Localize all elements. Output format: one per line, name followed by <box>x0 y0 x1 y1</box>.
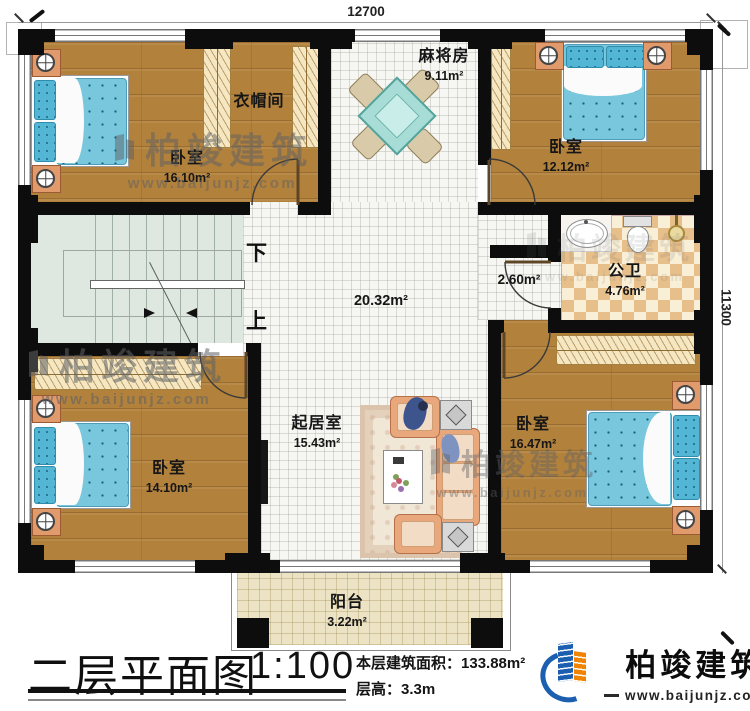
dimension-value-top: 12700 <box>316 4 416 19</box>
room-name: 卧室 <box>549 138 583 159</box>
room-label-vestibule: 2.60m² <box>498 271 541 289</box>
title-underline-thin <box>28 699 346 701</box>
logo-url: www.baijunjz.com <box>625 688 750 703</box>
dimension-value-right: 11300 <box>719 278 734 338</box>
room-name: 卧室 <box>152 459 186 480</box>
room-area: 16.10m² <box>164 170 211 186</box>
room-name: 卧室 <box>170 149 204 170</box>
floor-height-label: 层高： <box>356 681 401 698</box>
room-label-bedroom-tr: 卧室 12.12m² <box>543 138 590 175</box>
stair-up-label: 上 <box>246 305 267 335</box>
room-area: 14.10m² <box>146 480 193 496</box>
room-area: 15.43m² <box>294 435 341 451</box>
room-label-bedroom-tl: 卧室 16.10m² <box>164 149 211 186</box>
logo-text: 柏竣建筑 www.baijunjz.com <box>604 640 750 703</box>
room-area: 16.47m² <box>510 436 557 452</box>
room-label-mahjong: 麻将房 9.11m² <box>418 47 469 84</box>
room-name: 起居室 <box>291 414 342 435</box>
room-name: 公卫 <box>608 262 642 283</box>
floor-area-label: 本层建筑面积： <box>356 655 461 672</box>
floor-height-info: 层高：3.3m <box>356 678 435 699</box>
room-label-bedroom-bl: 卧室 14.10m² <box>146 459 193 496</box>
logo-brand-name: 柏竣建筑 <box>625 640 750 685</box>
floor-area-info: 本层建筑面积：133.88m² <box>356 652 525 673</box>
room-label-bathroom: 公卫 4.76m² <box>605 262 645 299</box>
room-name: 阳台 <box>330 593 364 614</box>
title-underline <box>28 689 346 693</box>
logo-url-bar <box>604 694 619 697</box>
room-label-cloakroom: 衣帽间 <box>233 92 284 113</box>
room-label-hall: 20.32m² <box>354 292 408 311</box>
stair-down-label: 下 <box>246 237 267 267</box>
dimension-line-top <box>18 22 713 23</box>
logo-url-row: www.baijunjz.com <box>604 688 750 703</box>
floor-plan-page: { "dimensions": { "top": "12700", "right… <box>0 0 750 710</box>
logo-building-blue <box>558 642 573 682</box>
floor-height-value: 3.3m <box>401 681 435 698</box>
room-label-balcony: 阳台 3.22m² <box>327 593 367 630</box>
room-label-living: 起居室 15.43m² <box>291 414 342 451</box>
logo-building-orange <box>574 651 586 683</box>
drawing-scale: 1:100 <box>250 645 355 688</box>
drawing-title: 二层平面图 <box>28 640 258 704</box>
room-area: 4.76m² <box>605 283 645 299</box>
door-swing-arcs <box>0 0 750 710</box>
room-name: 麻将房 <box>418 47 469 68</box>
room-name: 衣帽间 <box>233 92 284 113</box>
room-area: 2.60m² <box>498 271 541 289</box>
company-logo-icon <box>540 640 596 698</box>
floor-area-value: 133.88m² <box>461 655 525 672</box>
room-name: 卧室 <box>516 415 550 436</box>
company-logo: 柏竣建筑 www.baijunjz.com <box>540 640 750 703</box>
room-area: 20.32m² <box>354 292 408 311</box>
room-area: 12.12m² <box>543 159 590 175</box>
room-label-bedroom-br: 卧室 16.47m² <box>510 415 557 452</box>
room-area: 3.22m² <box>327 614 367 630</box>
room-area: 9.11m² <box>425 68 464 84</box>
